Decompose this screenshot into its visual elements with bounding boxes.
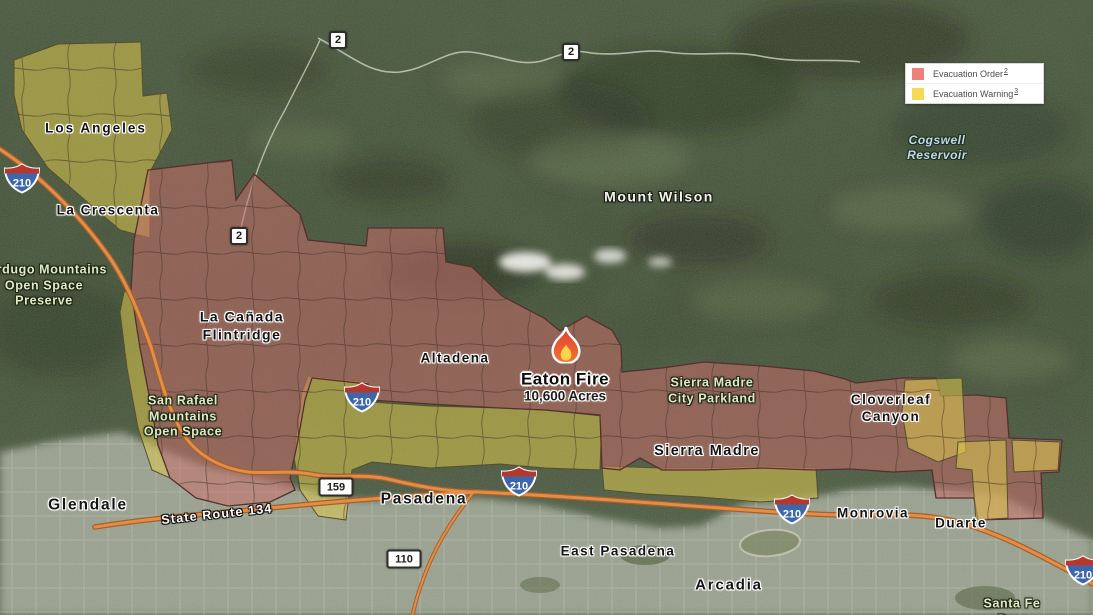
route-2-shield: 2 bbox=[562, 43, 580, 61]
legend-footnote-link[interactable]: 3 bbox=[1014, 88, 1018, 95]
legend-label-evacuation-order: Evacuation Order2 bbox=[933, 68, 1037, 79]
fire-location-icon bbox=[550, 326, 582, 369]
route-2-shield: 2 bbox=[230, 227, 248, 245]
legend-row-evacuation-order: Evacuation Order2 bbox=[906, 64, 1043, 83]
evacuation-order-swatch bbox=[912, 68, 924, 80]
evacuation-warning-swatch bbox=[912, 88, 924, 100]
legend-label-evacuation-warning: Evacuation Warning3 bbox=[933, 88, 1037, 99]
map-legend: Evacuation Order2 Evacuation Warning3 bbox=[905, 63, 1044, 104]
legend-row-evacuation-warning: Evacuation Warning3 bbox=[906, 83, 1043, 103]
satellite-evacuation-map[interactable]: Los Angeles La Crescenta Verdugo Mountai… bbox=[0, 0, 1093, 615]
legend-footnote-link[interactable]: 2 bbox=[1004, 68, 1008, 75]
route-159-shield: 159 bbox=[319, 478, 354, 497]
route-110-shield: 110 bbox=[387, 550, 422, 569]
route-2-shield: 2 bbox=[329, 31, 347, 49]
